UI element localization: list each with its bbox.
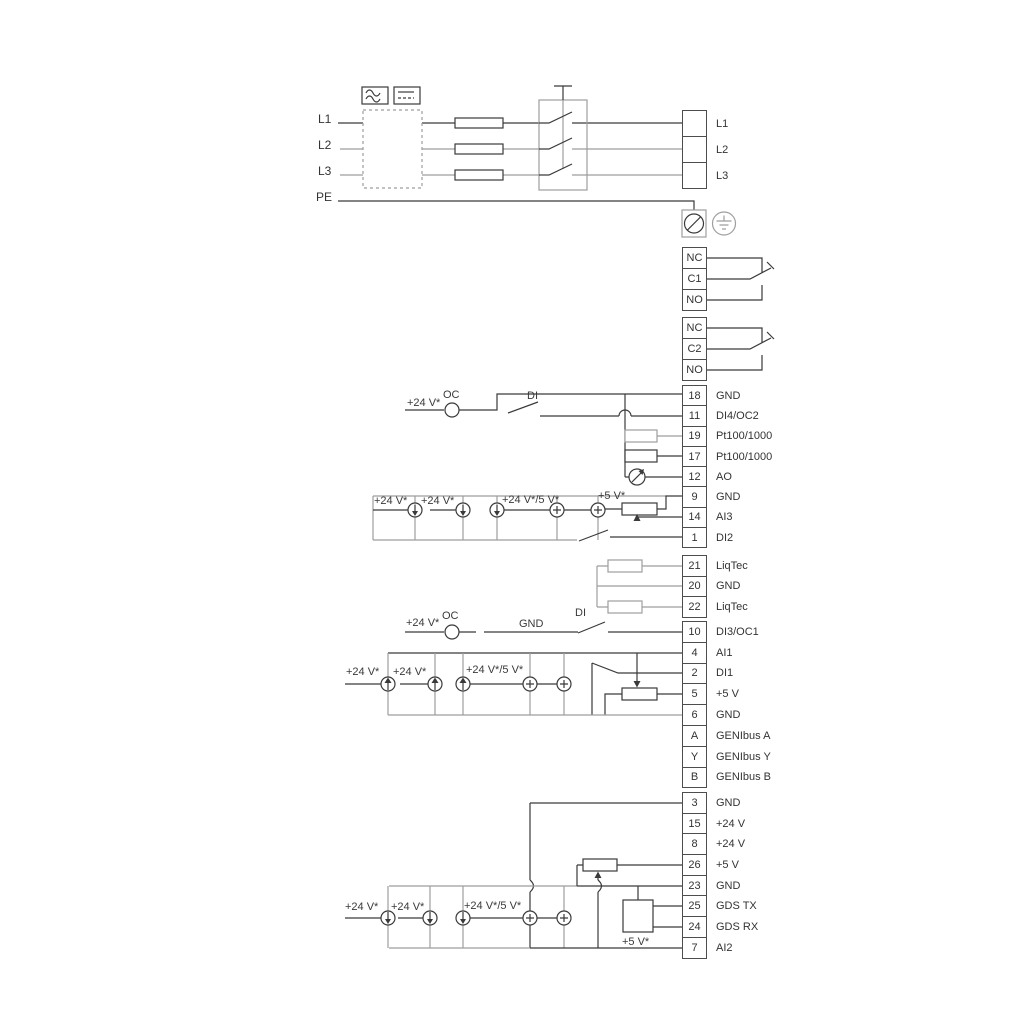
terminal-label: L1 bbox=[716, 110, 728, 137]
label-plus5v: +5 V* bbox=[598, 490, 625, 502]
label-plus5v: +5 V* bbox=[622, 936, 649, 948]
mains-wiring bbox=[338, 86, 736, 237]
terminal-block-io2: 10DI3/OC1 4AI1 2DI1 5+5 V 6GND AGENIbus … bbox=[682, 621, 771, 788]
terminal-number: 14 bbox=[682, 507, 707, 528]
terminal-number: 21 bbox=[682, 555, 707, 577]
terminal-number: NC bbox=[682, 317, 707, 339]
terminal-label: LiqTec bbox=[716, 555, 748, 577]
terminal-number: NO bbox=[682, 359, 707, 381]
mains-label-l1: L1 bbox=[318, 112, 331, 126]
terminal-number: C2 bbox=[682, 338, 707, 360]
terminal-label: DI3/OC1 bbox=[716, 621, 759, 643]
terminal-row: L3 bbox=[682, 162, 728, 189]
terminal-label: GND bbox=[716, 875, 740, 897]
label-plus24v-5v: +24 V*/5 V* bbox=[466, 664, 523, 676]
terminal-row: 22LiqTec bbox=[682, 596, 748, 618]
terminal-row: 6GND bbox=[682, 704, 771, 726]
terminal-number: 5 bbox=[682, 683, 707, 705]
terminal-row: NO bbox=[682, 289, 707, 311]
terminal-row: 15+24 V bbox=[682, 813, 758, 835]
terminal-number: 25 bbox=[682, 895, 707, 917]
terminal-label: +24 V bbox=[716, 833, 745, 855]
terminal-row: L2 bbox=[682, 136, 728, 163]
terminal-label: DI1 bbox=[716, 663, 733, 685]
terminal-label: AI2 bbox=[716, 937, 733, 959]
resistor-icon bbox=[608, 601, 642, 613]
terminal-row: NO bbox=[682, 359, 707, 381]
terminal-row: 14AI3 bbox=[682, 507, 772, 528]
earth-ground-icon bbox=[713, 212, 736, 235]
terminal-number: 6 bbox=[682, 704, 707, 726]
terminal-label: GENIbus B bbox=[716, 767, 771, 789]
terminal-row: 10DI3/OC1 bbox=[682, 621, 771, 643]
oc-circle-icon bbox=[445, 625, 459, 639]
terminal-row: 26+5 V bbox=[682, 854, 758, 876]
terminal-block-mains: L1 L2 L3 bbox=[682, 110, 728, 189]
terminal-number: 10 bbox=[682, 621, 707, 643]
label-plus24v-5v: +24 V*/5 V* bbox=[464, 900, 521, 912]
terminal-number: 17 bbox=[682, 446, 707, 467]
label-gnd: GND bbox=[519, 618, 543, 630]
terminal-row: 17Pt100/1000 bbox=[682, 446, 772, 467]
terminal-label: GDS RX bbox=[716, 916, 758, 938]
terminal-number: 2 bbox=[682, 663, 707, 685]
terminal-row: 2DI1 bbox=[682, 663, 771, 685]
terminal-number: 11 bbox=[682, 405, 707, 426]
terminal-number: 9 bbox=[682, 486, 707, 507]
label-plus24v: +24 V* bbox=[345, 901, 378, 913]
label-oc: OC bbox=[443, 389, 460, 401]
terminal-row: L1 bbox=[682, 110, 728, 137]
mains-label-l2: L2 bbox=[318, 138, 331, 152]
terminal-number: 20 bbox=[682, 576, 707, 598]
terminal-label: GND bbox=[716, 486, 740, 507]
terminal-label: GENIbus A bbox=[716, 725, 770, 747]
emc-filter-box bbox=[363, 110, 422, 188]
mains-label-l3: L3 bbox=[318, 164, 331, 178]
terminal-label: GND bbox=[716, 385, 740, 406]
terminal-row: YGENIbus Y bbox=[682, 746, 771, 768]
terminal-number: Y bbox=[682, 746, 707, 768]
fuse-icon bbox=[455, 144, 503, 154]
terminal-row: 7AI2 bbox=[682, 937, 758, 959]
terminal-row: 24GDS RX bbox=[682, 916, 758, 938]
terminal-block-liqtec: 21LiqTec 20GND 22LiqTec bbox=[682, 555, 748, 618]
terminal-label: AI1 bbox=[716, 642, 733, 664]
terminal-row: 9GND bbox=[682, 486, 772, 507]
terminal-number bbox=[682, 110, 707, 137]
terminal-block-io1: 18GND 11DI4/OC2 19Pt100/1000 17Pt100/100… bbox=[682, 385, 772, 548]
terminal-label: L2 bbox=[716, 136, 728, 163]
label-plus24v: +24 V* bbox=[407, 397, 440, 409]
terminal-label: LiqTec bbox=[716, 596, 748, 618]
terminal-number: 19 bbox=[682, 426, 707, 447]
terminal-label: L3 bbox=[716, 162, 728, 189]
terminal-block-io3: 3GND 15+24 V 8+24 V 26+5 V 23GND 25GDS T… bbox=[682, 792, 758, 959]
terminal-number: 1 bbox=[682, 527, 707, 548]
oc-circle-icon bbox=[445, 403, 459, 417]
terminal-label: AI3 bbox=[716, 507, 733, 528]
terminal-label: GND bbox=[716, 792, 740, 814]
terminal-label: AO bbox=[716, 466, 732, 487]
terminal-number: 15 bbox=[682, 813, 707, 835]
fuse-icon bbox=[455, 170, 503, 180]
terminal-row: 3GND bbox=[682, 792, 758, 814]
terminal-number: 22 bbox=[682, 596, 707, 618]
label-plus24v: +24 V* bbox=[421, 495, 454, 507]
terminal-number: 23 bbox=[682, 875, 707, 897]
io-group3-wiring bbox=[345, 803, 682, 948]
wiring-diagram: L1 L2 L3 PE L1 L2 L3 NC C1 NO NC C2 NO 1… bbox=[0, 0, 1024, 1024]
label-plus24v: +24 V* bbox=[393, 666, 426, 678]
relay-contacts bbox=[706, 258, 774, 370]
terminal-row: BGENIbus B bbox=[682, 767, 771, 789]
label-oc: OC bbox=[442, 610, 459, 622]
liqtec-wiring bbox=[597, 560, 682, 613]
label-plus24v: +24 V* bbox=[391, 901, 424, 913]
terminal-row: 23GND bbox=[682, 875, 758, 897]
terminal-number bbox=[682, 136, 707, 163]
gds-module-box bbox=[623, 900, 653, 932]
terminal-row: 1DI2 bbox=[682, 527, 772, 548]
terminal-number: 12 bbox=[682, 466, 707, 487]
terminal-number: NO bbox=[682, 289, 707, 311]
terminal-number: 26 bbox=[682, 854, 707, 876]
label-di: DI bbox=[575, 607, 586, 619]
terminal-row: C2 bbox=[682, 338, 707, 360]
label-plus24v: +24 V* bbox=[346, 666, 379, 678]
terminal-label: Pt100/1000 bbox=[716, 426, 772, 447]
terminal-row: 18GND bbox=[682, 385, 772, 406]
terminal-label: GDS TX bbox=[716, 895, 757, 917]
wiring-svg bbox=[0, 0, 1024, 1024]
terminal-number: 18 bbox=[682, 385, 707, 406]
potentiometer-icon bbox=[622, 503, 657, 515]
terminal-row: NC bbox=[682, 247, 707, 269]
terminal-number: 7 bbox=[682, 937, 707, 959]
resistor-icon bbox=[625, 450, 657, 462]
terminal-row: AGENIbus A bbox=[682, 725, 771, 747]
terminal-row: 5+5 V bbox=[682, 683, 771, 705]
terminal-row: 4AI1 bbox=[682, 642, 771, 664]
terminal-label: DI4/OC2 bbox=[716, 405, 759, 426]
terminal-number bbox=[682, 162, 707, 189]
terminal-number: C1 bbox=[682, 268, 707, 290]
terminal-row: 8+24 V bbox=[682, 833, 758, 855]
io-group1-wiring bbox=[373, 394, 682, 541]
terminal-number: NC bbox=[682, 247, 707, 269]
terminal-label: GND bbox=[716, 576, 740, 598]
terminal-label: +5 V bbox=[716, 683, 739, 705]
dc-symbol-icon bbox=[394, 87, 420, 104]
resistor-icon bbox=[608, 560, 642, 572]
potentiometer-icon bbox=[583, 859, 617, 871]
terminal-number: A bbox=[682, 725, 707, 747]
mains-label-pe: PE bbox=[316, 190, 332, 204]
terminal-label: DI2 bbox=[716, 527, 733, 548]
resistor-icon bbox=[625, 430, 657, 442]
terminal-row: 20GND bbox=[682, 576, 748, 598]
terminal-row: 19Pt100/1000 bbox=[682, 426, 772, 447]
terminal-row: C1 bbox=[682, 268, 707, 290]
terminal-block-relay1: NC C1 NO bbox=[682, 247, 707, 311]
terminal-block-relay2: NC C2 NO bbox=[682, 317, 707, 381]
terminal-label: GENIbus Y bbox=[716, 746, 771, 768]
label-di: DI bbox=[527, 390, 538, 402]
terminal-label: +24 V bbox=[716, 813, 745, 835]
terminal-row: NC bbox=[682, 317, 707, 339]
terminal-label: Pt100/1000 bbox=[716, 446, 772, 467]
label-plus24v: +24 V* bbox=[406, 617, 439, 629]
terminal-number: B bbox=[682, 767, 707, 789]
label-plus24v-5v: +24 V*/5 V* bbox=[502, 494, 559, 506]
terminal-number: 4 bbox=[682, 642, 707, 664]
fuse-icon bbox=[455, 118, 503, 128]
terminal-number: 3 bbox=[682, 792, 707, 814]
terminal-row: 21LiqTec bbox=[682, 555, 748, 577]
terminal-number: 8 bbox=[682, 833, 707, 855]
terminal-number: 24 bbox=[682, 916, 707, 938]
label-plus24v: +24 V* bbox=[374, 495, 407, 507]
terminal-row: 25GDS TX bbox=[682, 895, 758, 917]
terminal-label: GND bbox=[716, 704, 740, 726]
terminal-row: 12AO bbox=[682, 466, 772, 487]
terminal-label: +5 V bbox=[716, 854, 739, 876]
potentiometer-icon bbox=[622, 688, 657, 700]
terminal-row: 11DI4/OC2 bbox=[682, 405, 772, 426]
